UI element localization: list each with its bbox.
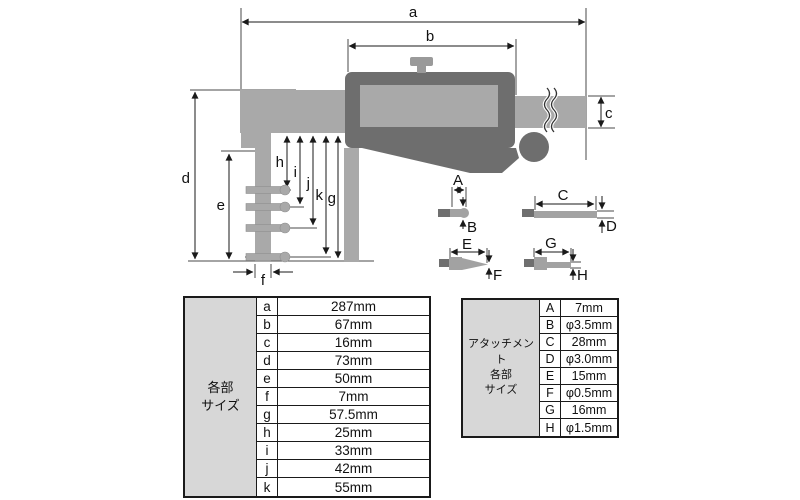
table-cell-key: F xyxy=(540,385,561,402)
table-cell-key: a xyxy=(257,298,278,316)
lcd-screen xyxy=(360,85,498,127)
table-cell-key: k xyxy=(257,478,278,496)
table-cell-key: G xyxy=(540,402,561,419)
size-table-header-line: 各部 xyxy=(207,379,233,397)
table-cell-value: 50mm xyxy=(278,370,429,388)
attachment-table-header: アタッチメント 各部 サイズ xyxy=(463,300,540,436)
table-cell-value: 25mm xyxy=(278,424,429,442)
housing-lower-lobe xyxy=(362,148,519,173)
table-cell-value: 33mm xyxy=(278,442,429,460)
table-cell-value: 7mm xyxy=(278,388,429,406)
dim-label-k: k xyxy=(316,187,324,204)
table-cell-value: 287mm xyxy=(278,298,429,316)
thumb-roller xyxy=(519,132,549,162)
table-cell-value: φ3.5mm xyxy=(561,317,617,334)
table-cell-key: E xyxy=(540,368,561,385)
dim-label-c: c xyxy=(605,105,613,122)
caliper-spec-figure: a b c d e f g h i j k A B C D E F G H 各部… xyxy=(0,0,800,500)
pin xyxy=(246,202,290,212)
attachment-e-drawing xyxy=(439,257,488,270)
dim-label-B: B xyxy=(467,219,477,236)
dim-label-G: G xyxy=(545,235,557,252)
table-cell-value: φ0.5mm xyxy=(561,385,617,402)
dim-label-F: F xyxy=(493,267,502,284)
dim-label-h: h xyxy=(276,154,284,171)
attachment-table-header-line: アタッチメント xyxy=(463,337,539,368)
table-cell-key: g xyxy=(257,406,278,424)
pin xyxy=(246,252,290,262)
table-cell-value: φ3.0mm xyxy=(561,351,617,368)
attachment-table-header-line: 各部 xyxy=(490,368,512,383)
table-cell-key: C xyxy=(540,334,561,351)
jaw-step xyxy=(241,133,271,148)
table-cell-value: 28mm xyxy=(561,334,617,351)
depth-bar-right xyxy=(344,148,359,262)
dim-label-E: E xyxy=(462,236,472,253)
table-cell-key: D xyxy=(540,351,561,368)
dim-label-f: f xyxy=(261,272,266,289)
attachment-size-table: アタッチメント 各部 サイズ A 7mm B φ3.5mm C 28mm D φ… xyxy=(461,298,619,438)
lock-screw xyxy=(410,57,433,73)
table-cell-key: e xyxy=(257,370,278,388)
table-cell-value: 7mm xyxy=(561,300,617,317)
dim-label-d: d xyxy=(182,170,190,187)
pin xyxy=(246,185,290,195)
dim-label-i: i xyxy=(294,164,297,181)
size-table-header-line: サイズ xyxy=(201,397,240,415)
dim-label-H: H xyxy=(577,267,588,284)
table-cell-key: c xyxy=(257,334,278,352)
dim-label-a: a xyxy=(409,4,418,21)
table-cell-key: A xyxy=(540,300,561,317)
table-cell-key: i xyxy=(257,442,278,460)
fixed-jaw-head xyxy=(240,90,345,133)
table-cell-key: d xyxy=(257,352,278,370)
table-cell-key: f xyxy=(257,388,278,406)
size-table-header: 各部 サイズ xyxy=(185,298,257,496)
dim-label-C: C xyxy=(558,187,569,204)
size-table: 各部 サイズ a 287mm b 67mm c 16mm d 73mm e 50… xyxy=(183,296,431,498)
table-cell-value: 55mm xyxy=(278,478,429,496)
attachment-table-header-line: サイズ xyxy=(485,383,518,398)
attachment-c-drawing xyxy=(522,209,597,218)
table-cell-key: j xyxy=(257,460,278,478)
caliper-diagram: a b c d e f g h i j k A B C D E F G H xyxy=(0,0,800,295)
dim-label-e: e xyxy=(217,197,225,214)
table-cell-value: 16mm xyxy=(561,402,617,419)
table-cell-value: 67mm xyxy=(278,316,429,334)
table-cell-key: H xyxy=(540,419,561,436)
table-cell-value: 16mm xyxy=(278,334,429,352)
dim-label-j: j xyxy=(306,175,310,192)
table-cell-value: φ1.5mm xyxy=(561,419,617,436)
dim-label-g: g xyxy=(328,190,336,207)
attachment-g-drawing xyxy=(524,257,571,270)
dim-label-b: b xyxy=(426,28,434,45)
table-cell-key: h xyxy=(257,424,278,442)
attachment-a-drawing xyxy=(438,208,469,218)
table-cell-key: b xyxy=(257,316,278,334)
table-cell-value: 73mm xyxy=(278,352,429,370)
dim-label-D: D xyxy=(606,218,617,235)
table-cell-value: 42mm xyxy=(278,460,429,478)
dim-label-A: A xyxy=(453,172,463,189)
table-cell-value: 15mm xyxy=(561,368,617,385)
table-cell-value: 57.5mm xyxy=(278,406,429,424)
table-cell-key: B xyxy=(540,317,561,334)
pin xyxy=(246,223,290,233)
